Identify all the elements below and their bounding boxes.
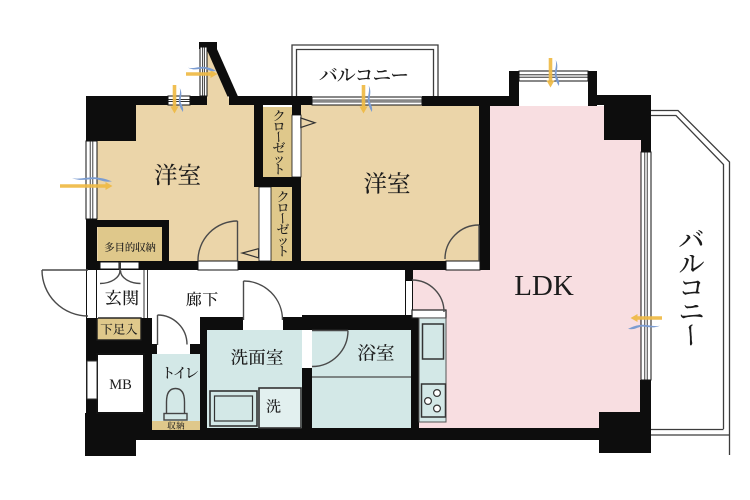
svg-text:MB: MB xyxy=(109,377,132,393)
svg-text:LDK: LDK xyxy=(514,270,574,302)
